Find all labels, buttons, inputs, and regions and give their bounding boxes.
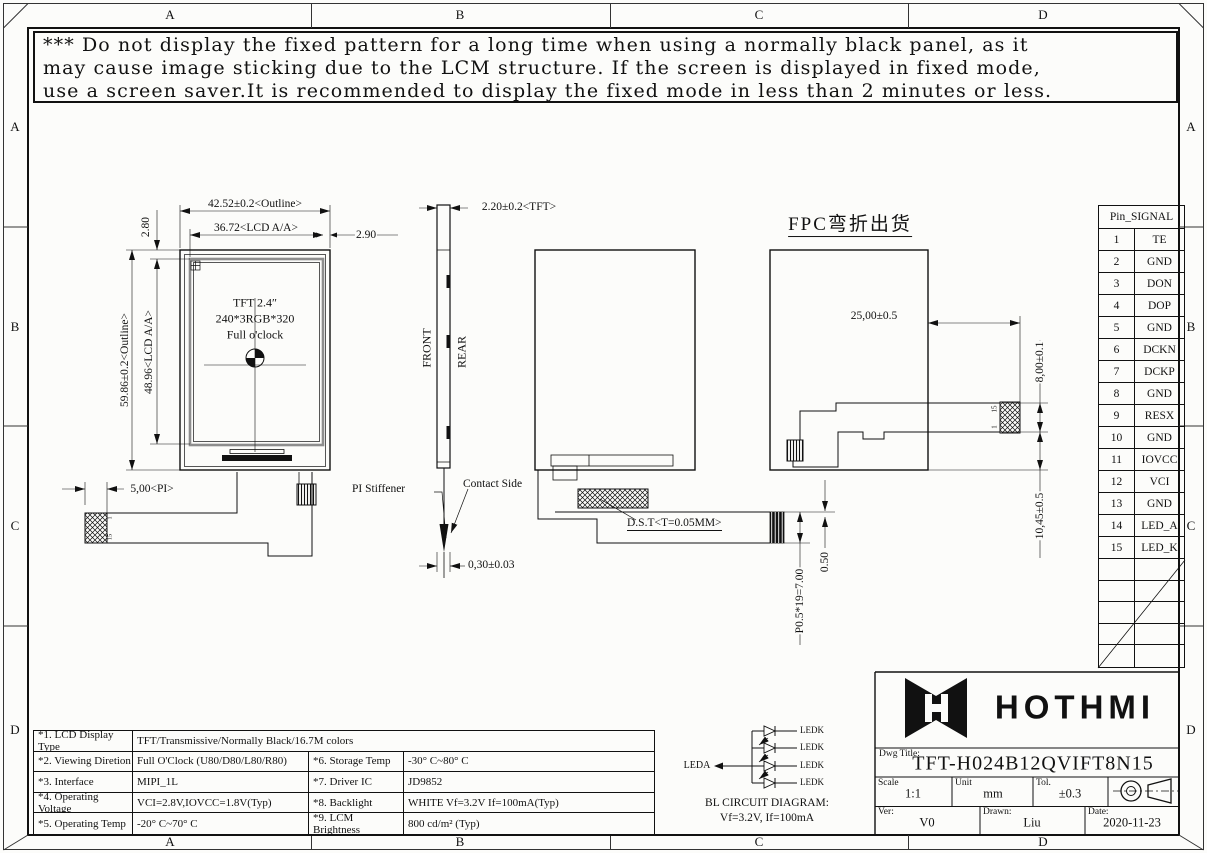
pin-table-blank-row (1099, 645, 1184, 667)
rear-view-outline (535, 250, 784, 543)
pin-signal: LED_K (1135, 537, 1184, 558)
spec-label: *8. Backlight (309, 793, 404, 813)
scale-value: 1:1 (905, 787, 921, 800)
ledk-label-1: LEDK (800, 726, 824, 735)
ledk-label-4: LEDK (800, 778, 824, 787)
zone-row-d-left: D (10, 723, 19, 737)
unit-value: mm (983, 787, 1002, 800)
spec-label: *7. Driver IC (309, 772, 404, 792)
side-view-outline (434, 205, 468, 578)
zone-row-a-right: A (1186, 120, 1195, 134)
spec-row-1: *1. LCD Display Type TFT/Transmissive/No… (34, 731, 654, 752)
pin-table-row: 3 DON (1099, 273, 1184, 295)
tolerance-value: ±0.3 (1059, 787, 1082, 800)
pin-table-header: Pin_SIGNAL (1099, 206, 1184, 229)
bl-circuit-caption-2: Vf=3.2V, If=100mA (720, 812, 814, 824)
ledk-label-3: LEDK (800, 761, 824, 770)
spec-row-2: *2. Viewing Diretion Full O'Clock (U80/D… (34, 752, 654, 773)
rear-side-label: REAR (456, 336, 469, 368)
scale-label: Scale (878, 779, 899, 789)
pin-number: 15 (1099, 537, 1135, 558)
dim-outline-width: 42.52±0.2<Outline> (208, 198, 302, 210)
bent-view-outline (770, 250, 1020, 470)
pin-table-row: 9 RESX (1099, 405, 1184, 427)
pin-number: 7 (1099, 361, 1135, 382)
pin-signal: IOVCC (1135, 449, 1184, 470)
spec-value: TFT/Transmissive/Normally Black/16.7M co… (133, 731, 654, 751)
pin-table-row: 11 IOVCC (1099, 449, 1184, 471)
fpc-bent-title: FPC弯折出货 (788, 215, 912, 237)
bl-circuit-schematic (714, 726, 797, 788)
zone-col-a-top: A (165, 8, 174, 22)
bent-pin1-label: 1 (991, 425, 998, 429)
dim-bent-width: 25,00±0.5 (850, 310, 899, 322)
hothmi-logo-icon (905, 678, 967, 738)
pin-number: 12 (1099, 471, 1135, 492)
dim-top-gap: 2.80 (140, 217, 152, 237)
pin-signal: TE (1135, 229, 1184, 250)
zone-col-c-top: C (755, 8, 764, 22)
front-side-label: FRONT (421, 328, 434, 367)
spec-label: *3. Interface (34, 772, 133, 792)
spec-value: JD9852 (404, 772, 654, 792)
zone-row-c-right: C (1187, 519, 1196, 533)
warning-note-box: *** Do not display the fixed pattern for… (33, 31, 1178, 103)
warning-line-3: use a screen saver.It is recommended to … (43, 80, 1168, 103)
fpc-pin15-label: 15 (108, 534, 115, 541)
projection-symbol-icon (1113, 779, 1180, 803)
pin-table-row: 12 VCI (1099, 471, 1184, 493)
bent-pin15-label: 15 (991, 406, 998, 413)
pin-number: 11 (1099, 449, 1135, 470)
pin-table-blank-row (1099, 559, 1184, 581)
pin-signal: GND (1135, 427, 1184, 448)
pin-table-row: 8 GND (1099, 383, 1184, 405)
pin-signal: GND (1135, 493, 1184, 514)
dim-right-gap: 2.90 (355, 229, 377, 241)
spec-value: -30° C~80° C (404, 752, 654, 772)
pin-number: 6 (1099, 339, 1135, 360)
pin-number: 1 (1099, 229, 1135, 250)
pin-table-row: 14 LED_A (1099, 515, 1184, 537)
pin-table-blank-row (1099, 581, 1184, 603)
pin-signal: DON (1135, 273, 1184, 294)
unit-label: Unit (955, 779, 972, 789)
pin-table-row: 15 LED_K (1099, 537, 1184, 559)
contact-side-label: Contact Side (463, 478, 522, 490)
pin-number: 8 (1099, 383, 1135, 404)
pin-signal: LED_A (1135, 515, 1184, 536)
pin-number: 4 (1099, 295, 1135, 316)
spec-label: *2. Viewing Diretion (34, 752, 133, 772)
dim-outline-height: 59.86±0.2<Outline> (119, 313, 131, 407)
pin-number: 2 (1099, 251, 1135, 272)
panel-spec-line-1: TFT 2.4″ (233, 297, 277, 310)
pin-table-body: 1 TE 2 GND 3 DON 4 DOP 5 GND (1099, 229, 1184, 559)
zone-col-b-top: B (456, 8, 465, 22)
version-label: Ver: (878, 808, 894, 818)
dim-active-area-height: 48.96<LCD A/A> (143, 310, 155, 394)
spec-row-4: *4. Operating Voltage VCI=2.8V,IOVCC=1.8… (34, 793, 654, 814)
zone-row-d-right: D (1186, 723, 1195, 737)
drawing-sheet: A B C D A B C D A B C D A B C D *** Do n… (0, 0, 1207, 853)
zone-col-d-bottom: D (1038, 835, 1047, 849)
zone-row-a-left: A (10, 120, 19, 134)
dim-pad-pitch: P0.5*19=7.00 (794, 568, 806, 635)
pin-table-row: 6 DCKN (1099, 339, 1184, 361)
pin-signal: GND (1135, 317, 1184, 338)
spec-value: Full O'Clock (U80/D80/L80/R80) (133, 752, 309, 772)
zone-row-b-left: B (11, 320, 20, 334)
pin-signal: VCI (1135, 471, 1184, 492)
dim-tft-thickness: 2.20±0.2<TFT> (482, 201, 556, 213)
pin-table-row: 4 DOP (1099, 295, 1184, 317)
pin-number: 3 (1099, 273, 1135, 294)
pin-table-row: 2 GND (1099, 251, 1184, 273)
pin-table-row: 1 TE (1099, 229, 1184, 251)
zone-row-c-left: C (11, 519, 20, 533)
zone-col-c-bottom: C (755, 835, 764, 849)
panel-spec-line-2: 240*3RGB*320 (216, 313, 295, 326)
pin-number: 9 (1099, 405, 1135, 426)
pin-number: 5 (1099, 317, 1135, 338)
pin-table-row: 7 DCKP (1099, 361, 1184, 383)
dim-fold-height: 10,45±0.5 (1034, 492, 1046, 541)
pin-table-row: 5 GND (1099, 317, 1184, 339)
bl-circuit-caption-1: BL CIRCUIT DIAGRAM: (705, 797, 829, 809)
zone-row-b-right: B (1187, 320, 1196, 334)
pin-table-blank-row (1099, 602, 1184, 624)
pin-number: 14 (1099, 515, 1135, 536)
specification-table: *1. LCD Display Type TFT/Transmissive/No… (33, 730, 655, 836)
zone-col-a-bottom: A (165, 835, 174, 849)
pin-table-row: 10 GND (1099, 427, 1184, 449)
ledk-label-2: LEDK (800, 743, 824, 752)
brand-wordmark: HOTHMI (995, 691, 1155, 726)
spec-value: 800 cd/m² (Typ) (404, 813, 654, 834)
spec-label: *1. LCD Display Type (34, 731, 133, 751)
date-value: 2020-11-23 (1103, 816, 1161, 829)
spec-label: *9. LCM Brightness (309, 813, 404, 834)
pi-stiffener-label: PI Stiffener (352, 483, 405, 495)
version-value: V0 (919, 816, 934, 829)
pin-signal-table: Pin_SIGNAL 1 TE 2 GND 3 DON 4 DOP (1098, 205, 1185, 668)
dim-tip-thickness: 0,30±0.03 (468, 559, 515, 571)
dim-active-area-width: 36.72<LCD A/A> (214, 222, 298, 234)
pin-table-row: 13 GND (1099, 493, 1184, 515)
panel-spec-line-3: Full o'clock (227, 329, 284, 342)
dwg-title-value: TFT-H024B12QVIFT8N15 (912, 754, 1154, 775)
pin-signal: GND (1135, 251, 1184, 272)
spec-row-5: *5. Operating Temp -20° C~70° C *9. LCM … (34, 813, 654, 834)
pin-number: 13 (1099, 493, 1135, 514)
drawn-by-value: Liu (1023, 816, 1040, 829)
pin-signal: DOP (1135, 295, 1184, 316)
spec-label: *4. Operating Voltage (34, 793, 133, 813)
dst-tape-label: D.S.T<T=0.05MM> (627, 517, 722, 531)
tolerance-label: Tol. (1036, 779, 1051, 789)
warning-line-2: may cause image sticking due to the LCM … (43, 57, 1168, 80)
spec-label: *6. Storage Temp (309, 752, 404, 772)
pin-number: 10 (1099, 427, 1135, 448)
pin-signal: RESX (1135, 405, 1184, 426)
spec-value: MIPI_1L (133, 772, 309, 792)
drawn-by-label: Drawn: (983, 808, 1012, 818)
zone-col-b-bottom: B (456, 835, 465, 849)
dim-pi-width: 5,00<PI> (129, 483, 174, 495)
spec-value: -20° C~70° C (133, 813, 309, 834)
pin-signal: DCKN (1135, 339, 1184, 360)
leda-label: LEDA (684, 761, 711, 772)
pin-signal: DCKP (1135, 361, 1184, 382)
spec-value: VCI=2.8V,IOVCC=1.8V(Typ) (133, 793, 309, 813)
dim-fold-width: 8,00±0.1 (1034, 341, 1046, 384)
spec-row-3: *3. Interface MIPI_1L *7. Driver IC JD98… (34, 772, 654, 793)
pin-table-blank-row (1099, 624, 1184, 646)
spec-label: *5. Operating Temp (34, 813, 133, 834)
spec-value: WHITE Vf=3.2V If=100mA(Typ) (404, 793, 654, 813)
dim-offset-050: 0.50 (819, 551, 831, 573)
bent-view-dimensions (928, 316, 1048, 558)
fpc-pin1-label: 1 (108, 516, 115, 519)
warning-line-1: *** Do not display the fixed pattern for… (43, 34, 1168, 57)
pin-signal: GND (1135, 383, 1184, 404)
zone-col-d-top: D (1038, 8, 1047, 22)
